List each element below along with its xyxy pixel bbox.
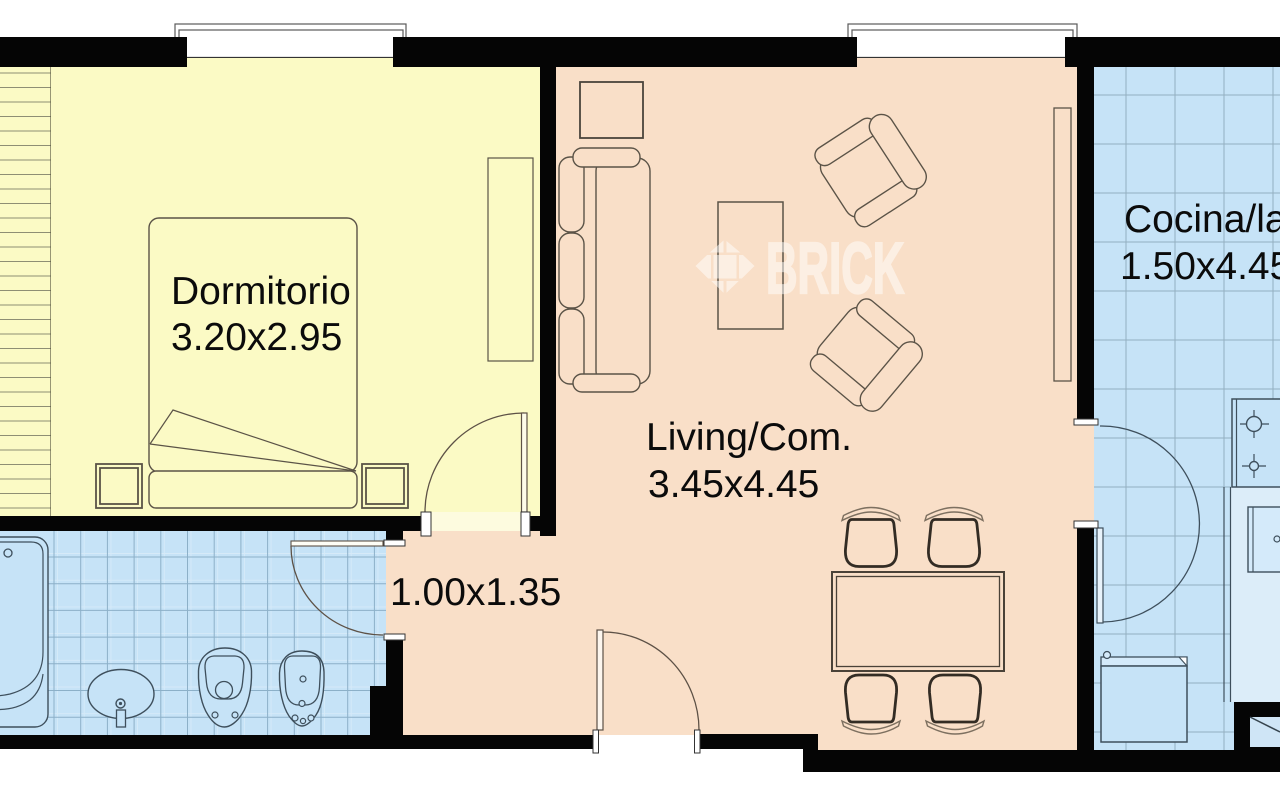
svg-text:3.20x2.95: 3.20x2.95: [171, 316, 342, 359]
svg-text:Dormitorio: Dormitorio: [171, 270, 351, 313]
svg-text:Living/Com.: Living/Com.: [646, 416, 852, 459]
svg-text:3.45x4.45: 3.45x4.45: [648, 463, 819, 506]
svg-text:Cocina/lavadero: Cocina/lavadero: [1124, 198, 1280, 241]
svg-text:BRICK: BRICK: [766, 228, 904, 309]
svg-text:1.50x4.45: 1.50x4.45: [1120, 245, 1280, 288]
svg-text:1.00x1.35: 1.00x1.35: [390, 571, 561, 614]
